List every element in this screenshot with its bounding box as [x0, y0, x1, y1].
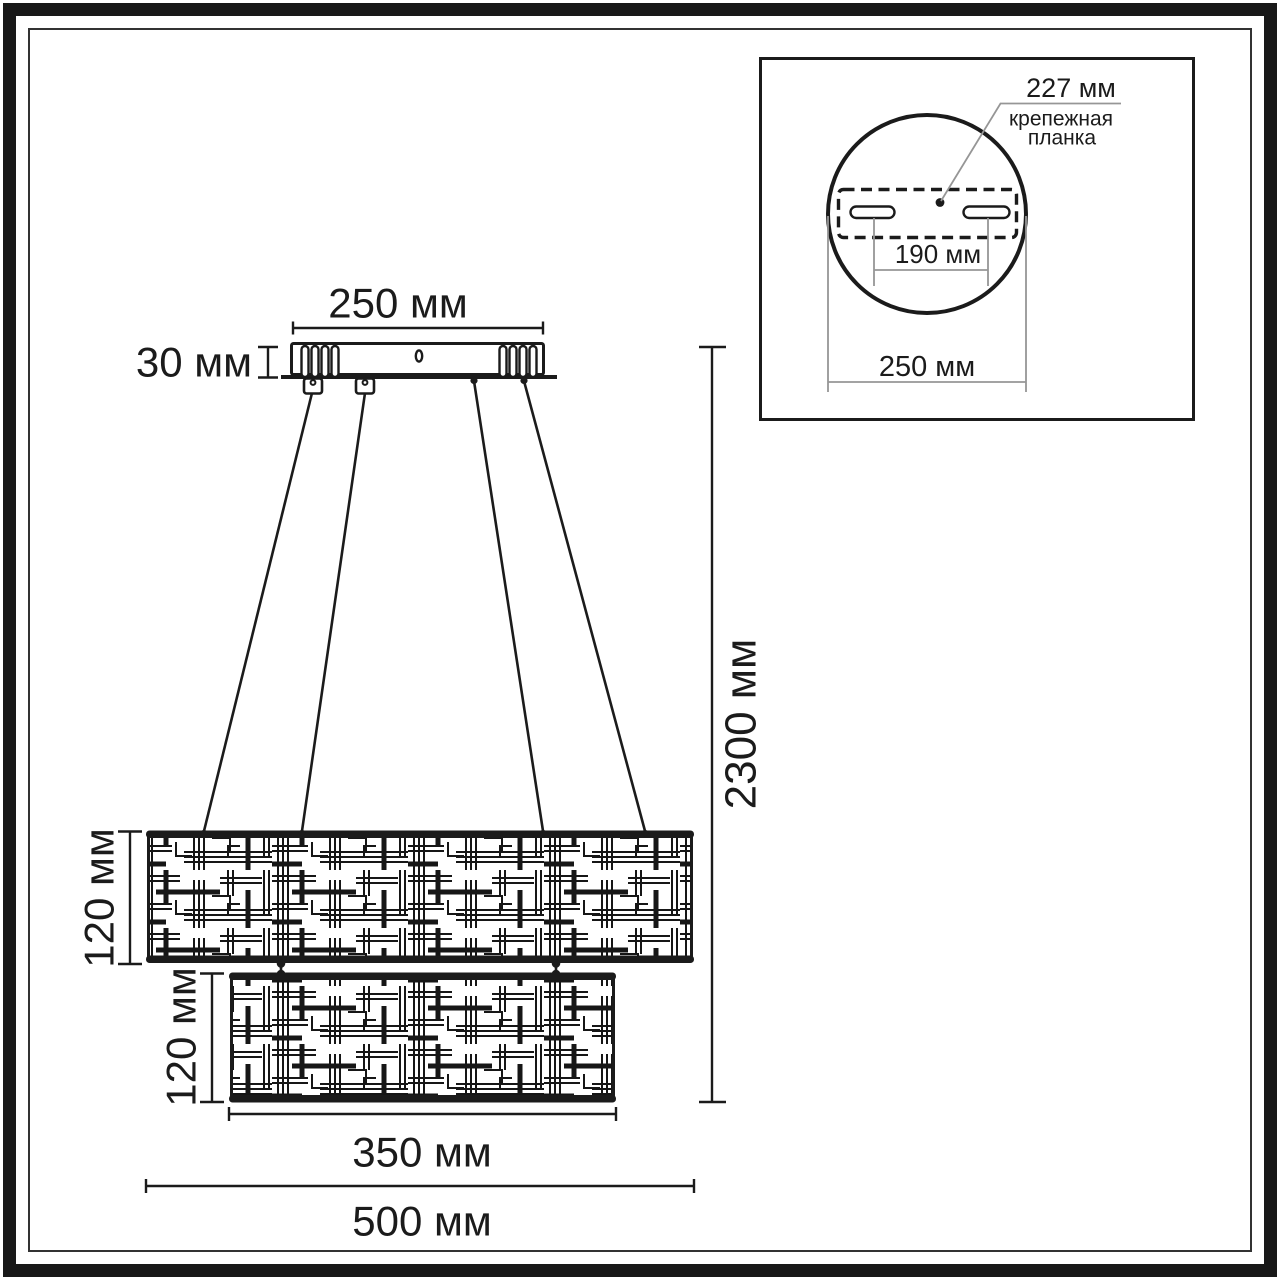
mounting-slot-left: [851, 207, 895, 219]
suspension-wires: [204, 381, 645, 831]
plate-center-dot: [936, 198, 945, 207]
tier-1-panel: [146, 830, 694, 963]
suspension-wire-3: [474, 381, 543, 831]
wire-hook-left-1: [304, 379, 322, 394]
suspension-wire-2: [302, 393, 365, 831]
label-canopy-width: 250 мм: [328, 280, 468, 327]
label-slot-spacing: 190 мм: [895, 239, 981, 269]
label-canopy-height: 30 мм: [136, 339, 252, 386]
label-tier1-height: 120 мм: [76, 828, 123, 968]
label-plate-length: 227 мм: [1026, 73, 1116, 103]
suspension-wire-4: [524, 381, 645, 831]
chandelier-dimension-diagram: 250 мм 30 мм 2300 мм 120 мм 120 мм 350 м…: [0, 0, 1280, 1280]
label-tier1-width: 500 мм: [352, 1198, 492, 1245]
dim-line-canopy-height: [258, 347, 278, 378]
label-tier2-width: 350 мм: [352, 1129, 492, 1176]
label-plate-caption-line2: планка: [1028, 127, 1097, 150]
dimension-drawing-page: 250 мм 30 мм 2300 мм 120 мм 120 мм 350 м…: [0, 0, 1280, 1280]
dim-line-tier1-width: [146, 1179, 694, 1193]
tier-2-panel: [229, 973, 616, 1103]
mounting-inset: 227 мм крепежная планка 190 мм 250 мм: [761, 59, 1194, 420]
label-cup-width: 250 мм: [879, 351, 975, 383]
dim-line-tier2-width: [229, 1107, 616, 1121]
suspension-wire-1: [204, 393, 312, 831]
main-view: 250 мм 30 мм 2300 мм 120 мм 120 мм 350 м…: [76, 280, 766, 1245]
mounting-slot-right: [964, 207, 1010, 219]
wire-hook-left-2: [356, 379, 374, 394]
label-overall-drop: 2300 мм: [717, 639, 766, 810]
label-tier2-height: 120 мм: [158, 967, 205, 1107]
